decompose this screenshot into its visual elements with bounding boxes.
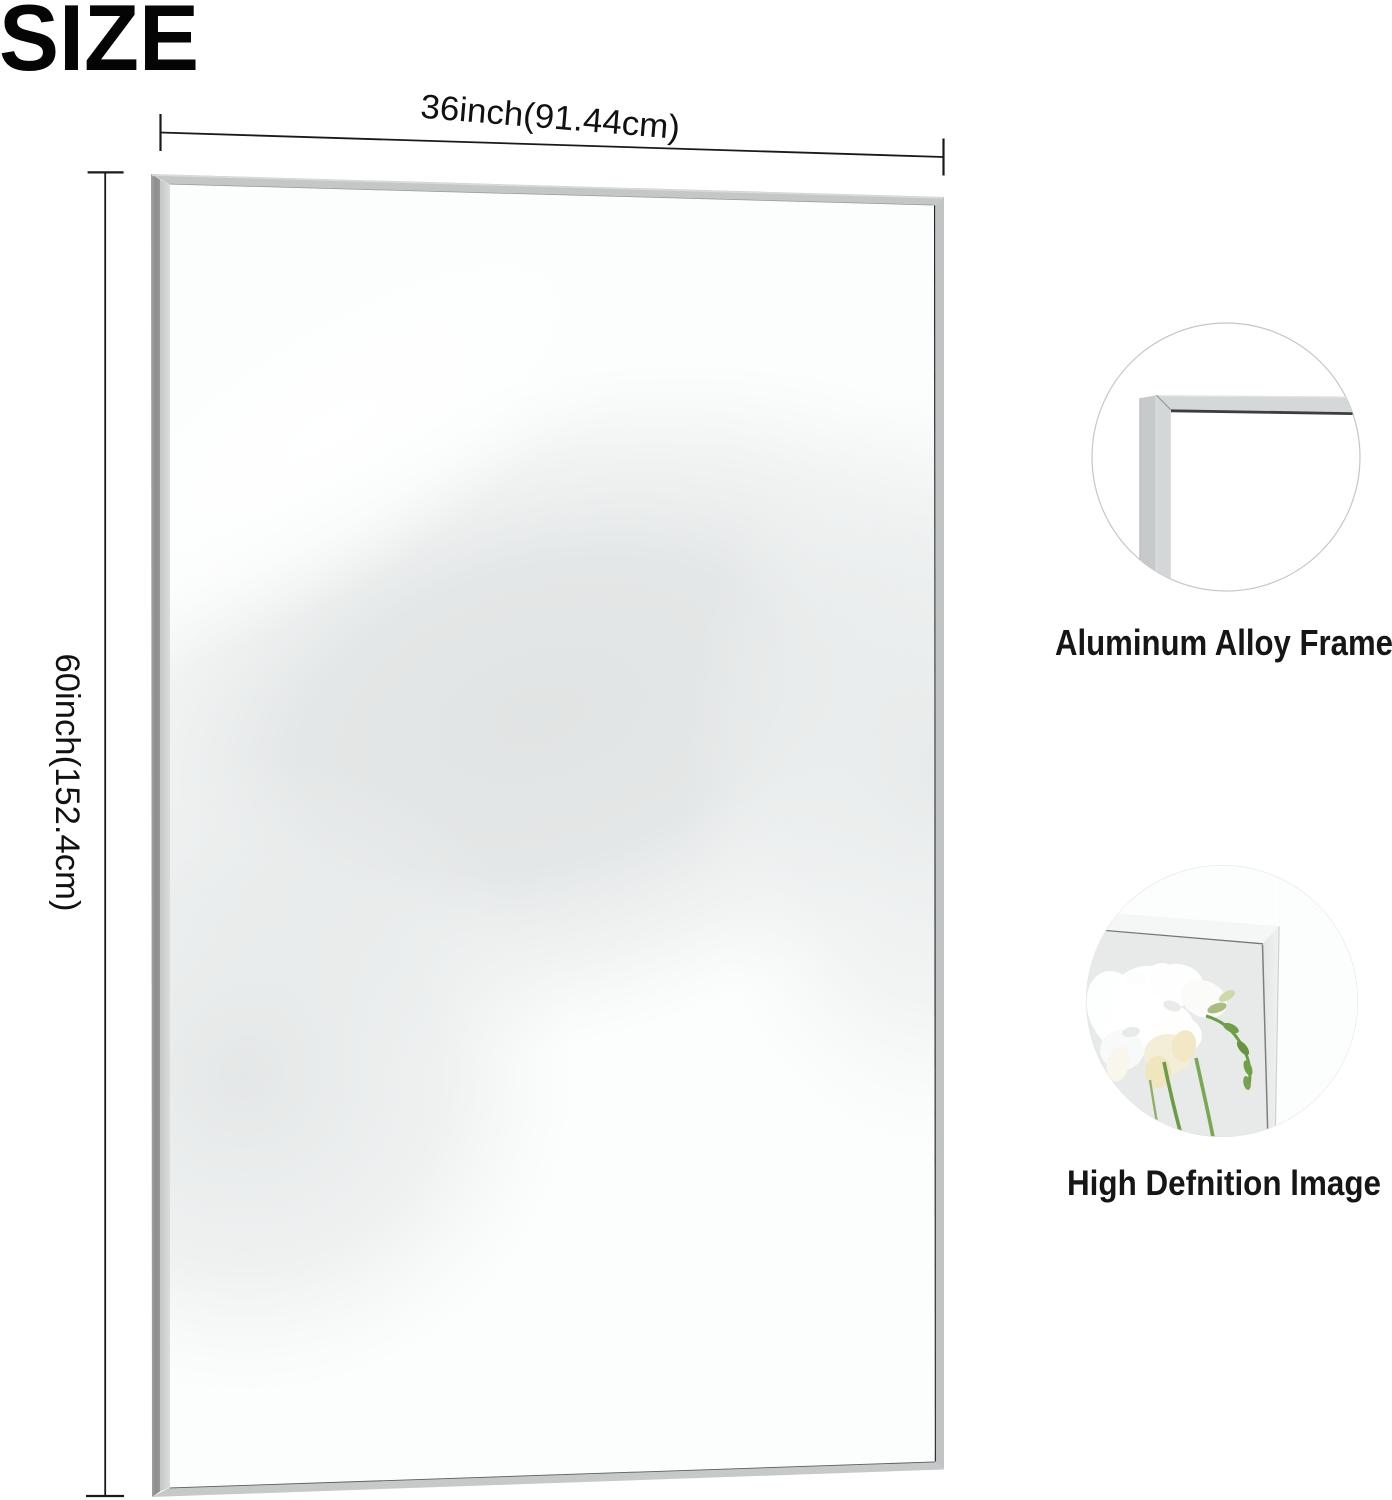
svg-text:SIZE: SIZE bbox=[0, 0, 199, 90]
svg-text:Aluminum Alloy Frame: Aluminum Alloy Frame bbox=[1055, 622, 1392, 663]
svg-text:60inch(152.4cm): 60inch(152.4cm) bbox=[48, 654, 86, 912]
svg-text:36inch(91.44cm): 36inch(91.44cm) bbox=[419, 88, 681, 147]
svg-text:High Defnition lmage: High Defnition lmage bbox=[1067, 1164, 1381, 1203]
